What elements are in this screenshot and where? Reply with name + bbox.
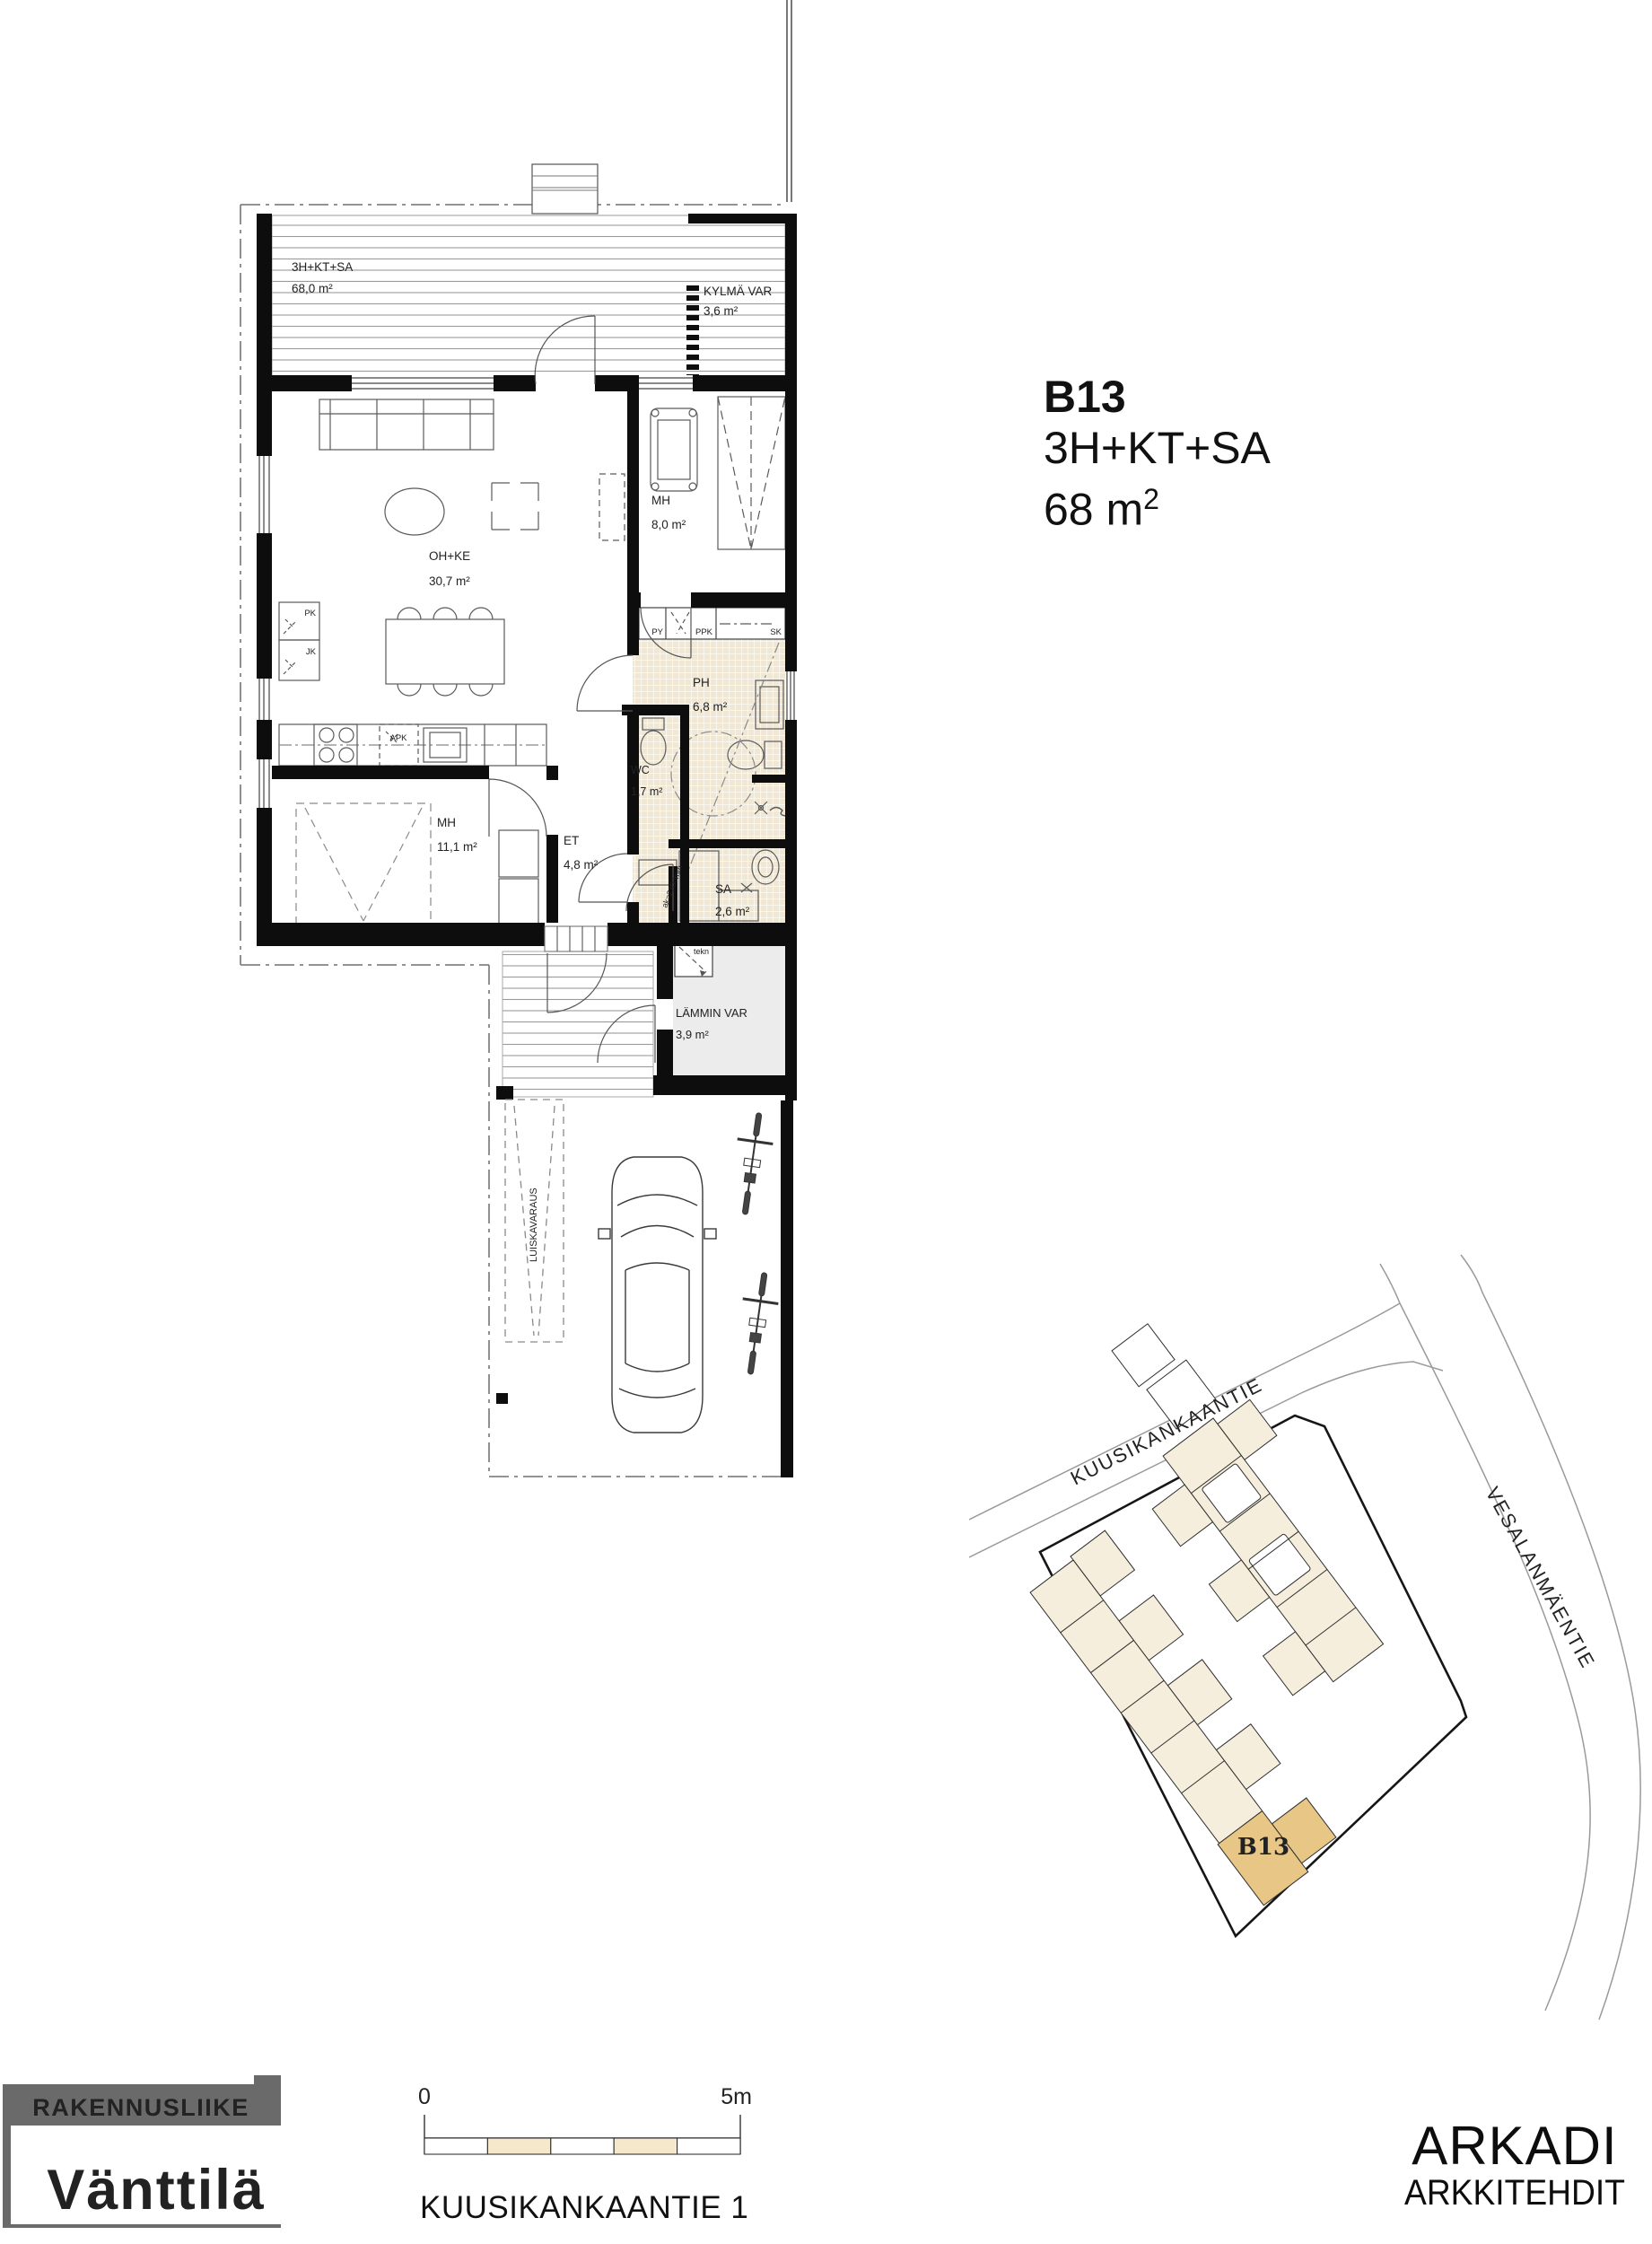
coffee-table — [385, 488, 444, 535]
unit-area: 68 m2 — [1044, 474, 1271, 536]
window — [352, 375, 494, 391]
lammin-var-area: 3,9 m² — [676, 1028, 710, 1041]
ph-area: 6,8 m² — [693, 700, 728, 714]
ph-label: PH — [693, 676, 710, 689]
window — [257, 759, 272, 808]
builder-logo-name-text: Vänttilä — [47, 2159, 266, 2222]
sk-label: SK — [770, 627, 782, 637]
py-label: PY — [651, 627, 663, 637]
window — [257, 456, 272, 533]
closet — [499, 830, 538, 925]
architect-logo: ARKADI ARKKITEHDIT — [1382, 2118, 1648, 2212]
window — [257, 679, 272, 720]
wardrobe — [718, 397, 785, 549]
kylma-var-label: KYLMÄ VAR — [704, 285, 773, 298]
site-unit-label: B13 — [1237, 1834, 1289, 1861]
mh2-label: MH — [437, 816, 456, 829]
crib — [651, 408, 697, 491]
scale-five-label: 5m — [721, 2084, 752, 2109]
utility-line — [787, 0, 791, 202]
luiskavaraus-label: LUISKAVARAUS — [529, 1188, 539, 1262]
pk-label: PK — [304, 609, 316, 618]
ppk-label: PPK — [695, 627, 713, 637]
architect-logo-line2: ARKKITEHDIT — [1391, 2174, 1638, 2212]
terrace — [272, 215, 785, 388]
chimney — [532, 164, 598, 214]
scale-zero-label: 0 — [418, 2084, 431, 2109]
street-label-vesalanmaentie: VESALANMÄENTIE — [1482, 1483, 1600, 1672]
jk-label: JK — [306, 647, 317, 657]
side-table — [492, 483, 538, 530]
window — [785, 671, 797, 720]
kitchen-counter — [279, 724, 546, 766]
site-plan: KUUSIKANKAANTIE VESALANMÄENTIE B13 — [969, 1252, 1652, 2024]
scale-bar: 0 5m — [395, 2073, 772, 2172]
architect-logo-line1: ARKADI — [1382, 2118, 1648, 2174]
sa-area: 2,6 m² — [715, 905, 750, 918]
sofa — [319, 399, 494, 450]
et-label: ET — [564, 834, 579, 847]
builder-logo: RAKENNUSLIIKE Vänttilä — [0, 2064, 310, 2240]
mh1-area: 8,0 m² — [651, 518, 686, 531]
title-block: B13 3H+KT+SA 68 m2 — [1044, 372, 1271, 536]
mh2-door — [489, 779, 546, 837]
wc-label: WC — [631, 764, 650, 776]
oh-ke-label: OH+KE — [429, 549, 470, 563]
wc-area: 1,7 m² — [631, 785, 662, 798]
kylma-var-area: 3,6 m² — [704, 304, 739, 318]
cabinet-reservation — [599, 474, 625, 540]
apk-label: APK — [389, 733, 407, 743]
lammin-var-label: LÄMMIN VAR — [676, 1006, 747, 1020]
car-icon — [599, 1157, 716, 1433]
ph-door — [577, 655, 633, 711]
address-label: KUUSIKANKAANTIE 1 — [420, 2190, 748, 2226]
terrace-area-label: 68,0 m² — [292, 282, 333, 295]
unit-id: B13 — [1044, 372, 1271, 423]
sa-label: SA — [715, 882, 731, 896]
window — [639, 375, 693, 391]
bicycle-icon — [732, 1270, 782, 1376]
mh2-area: 11,1 m² — [437, 840, 477, 854]
unit-type: 3H+KT+SA — [1044, 423, 1271, 474]
builder-logo-top-text: RAKENNUSLIIKE — [32, 2094, 249, 2121]
entry-steps — [545, 926, 607, 951]
drawing-sheet: 3H+KT+SA 68,0 m² KYLMÄ VAR 3,6 m² OH+KE … — [0, 0, 1652, 2244]
dining-table — [386, 608, 504, 696]
bed — [296, 803, 431, 925]
mh1-label: MH — [651, 494, 670, 507]
bicycle-icon — [727, 1110, 776, 1216]
oh-ke-area: 30,7 m² — [429, 574, 470, 588]
floor-plan: 3H+KT+SA 68,0 m² KYLMÄ VAR 3,6 m² OH+KE … — [224, 0, 817, 1508]
tekn-label: tekn — [694, 947, 709, 956]
walls — [257, 214, 797, 1477]
entrance-porch-deck — [503, 951, 653, 1097]
terrace-type-label: 3H+KT+SA — [292, 260, 353, 274]
door-opening — [536, 375, 595, 391]
et-area: 4,8 m² — [564, 858, 599, 872]
